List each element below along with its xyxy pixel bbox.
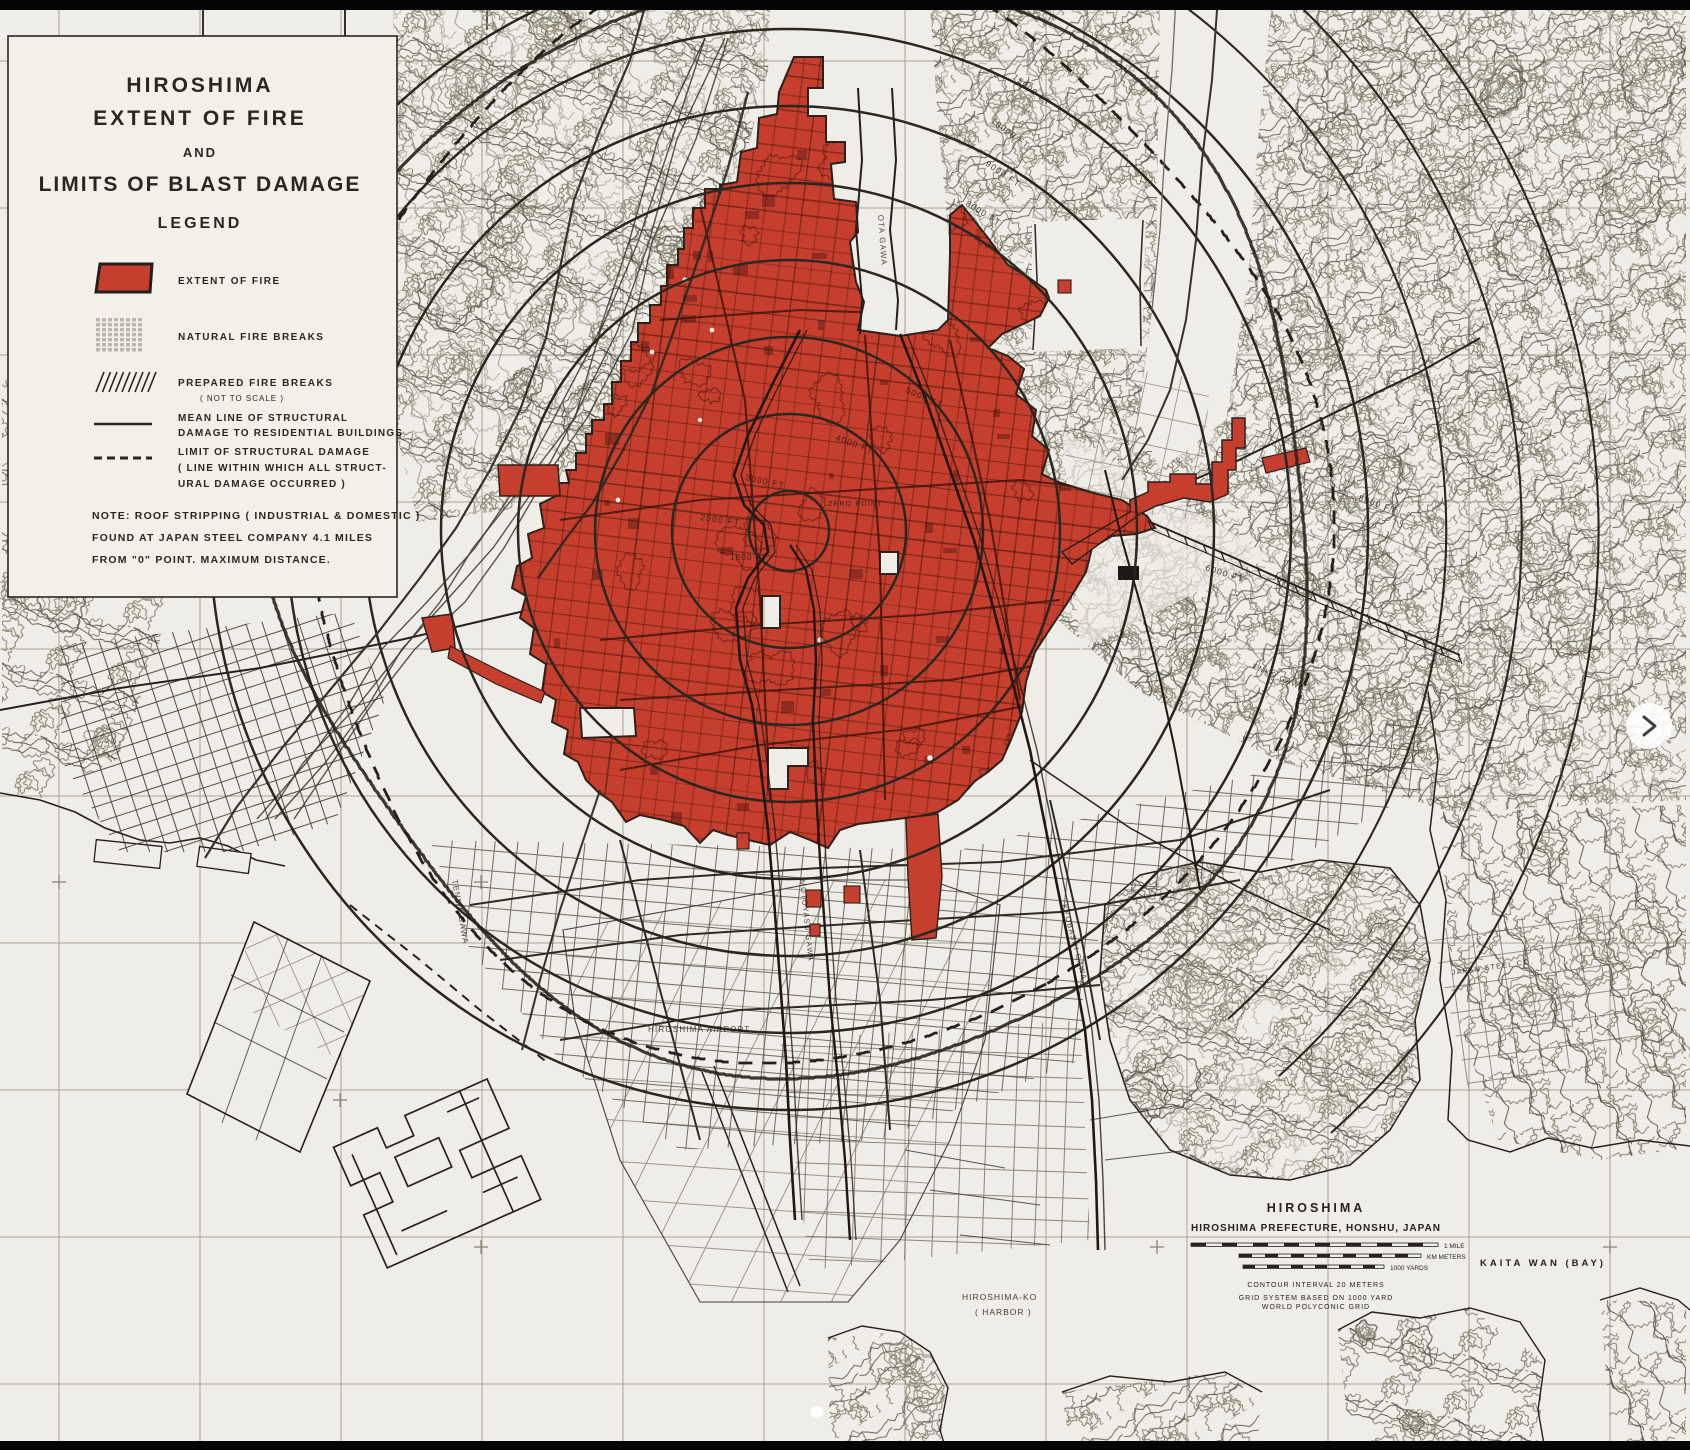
- svg-text:ZERO POINT: ZERO POINT: [828, 501, 883, 508]
- svg-text:HIROSHIMA PREFECTURE, HONSHU,: HIROSHIMA PREFECTURE, HONSHU, JAPAN: [1191, 1223, 1441, 1234]
- svg-text:PREPARED FIRE BREAKS: PREPARED FIRE BREAKS: [178, 378, 333, 389]
- svg-text:HIROSHIMA AIRPORT: HIROSHIMA AIRPORT: [648, 1025, 751, 1034]
- svg-text:NATURAL FIRE BREAKS: NATURAL FIRE BREAKS: [178, 332, 324, 343]
- svg-text:LIMIT OF STRUCTURAL DAMAGE: LIMIT OF STRUCTURAL DAMAGE: [178, 447, 370, 458]
- svg-text:LIMITS OF BLAST DAMAGE: LIMITS OF BLAST DAMAGE: [39, 173, 362, 196]
- svg-text:URAL DAMAGE OCCURRED ): URAL DAMAGE OCCURRED ): [178, 479, 346, 490]
- svg-text:1000 FT: 1000 FT: [730, 553, 768, 562]
- svg-text:KAITA WAN (BAY): KAITA WAN (BAY): [1480, 1258, 1606, 1269]
- svg-text:HIROSHIMA: HIROSHIMA: [126, 74, 273, 97]
- svg-text:LEGEND: LEGEND: [158, 215, 243, 232]
- svg-text:MEAN LINE OF STRUCTURAL: MEAN LINE OF STRUCTURAL: [178, 413, 348, 424]
- svg-text:1000 YARDS: 1000 YARDS: [1390, 1265, 1429, 1272]
- svg-text:WORLD POLYCONIC GRID: WORLD POLYCONIC GRID: [1262, 1304, 1370, 1311]
- svg-text:CONTOUR INTERVAL 20 METERS: CONTOUR INTERVAL 20 METERS: [1247, 1282, 1384, 1289]
- svg-text:EXTENT OF FIRE: EXTENT OF FIRE: [93, 107, 307, 130]
- svg-text:FOUND AT JAPAN STEEL COMPA: FOUND AT JAPAN STEEL COMPANY 4.1 MILES: [92, 532, 373, 544]
- svg-text:HIROSHIMA-KO: HIROSHIMA-KO: [962, 1292, 1037, 1302]
- svg-text:KM METERS: KM METERS: [1427, 1254, 1466, 1261]
- svg-text:NOTE: ROOF STRIPPING ( INDUS: NOTE: ROOF STRIPPING ( INDUSTRIAL & DOME…: [92, 510, 421, 522]
- svg-text:GRID SYSTEM BASED ON 1000 YARD: GRID SYSTEM BASED ON 1000 YARD: [1239, 1295, 1394, 1302]
- svg-text:AND: AND: [183, 145, 217, 160]
- svg-text:( NOT TO SCALE ): ( NOT TO SCALE ): [200, 394, 284, 403]
- svg-text:HIROSHIMA: HIROSHIMA: [1267, 1201, 1366, 1215]
- svg-text:( LINE WITHIN WHICH ALL ST: ( LINE WITHIN WHICH ALL STRUCT-: [178, 463, 387, 474]
- svg-text:EXTENT OF FIRE: EXTENT OF FIRE: [178, 276, 281, 287]
- svg-text:( HARBOR ): ( HARBOR ): [975, 1307, 1032, 1317]
- svg-text:FROM "0" POINT. MAXIMUM DI: FROM "0" POINT. MAXIMUM DISTANCE.: [92, 554, 331, 566]
- svg-text:1 MILE: 1 MILE: [1444, 1243, 1465, 1250]
- svg-text:DAMAGE TO RESIDENTIAL BUILD: DAMAGE TO RESIDENTIAL BUILDINGS: [178, 428, 403, 439]
